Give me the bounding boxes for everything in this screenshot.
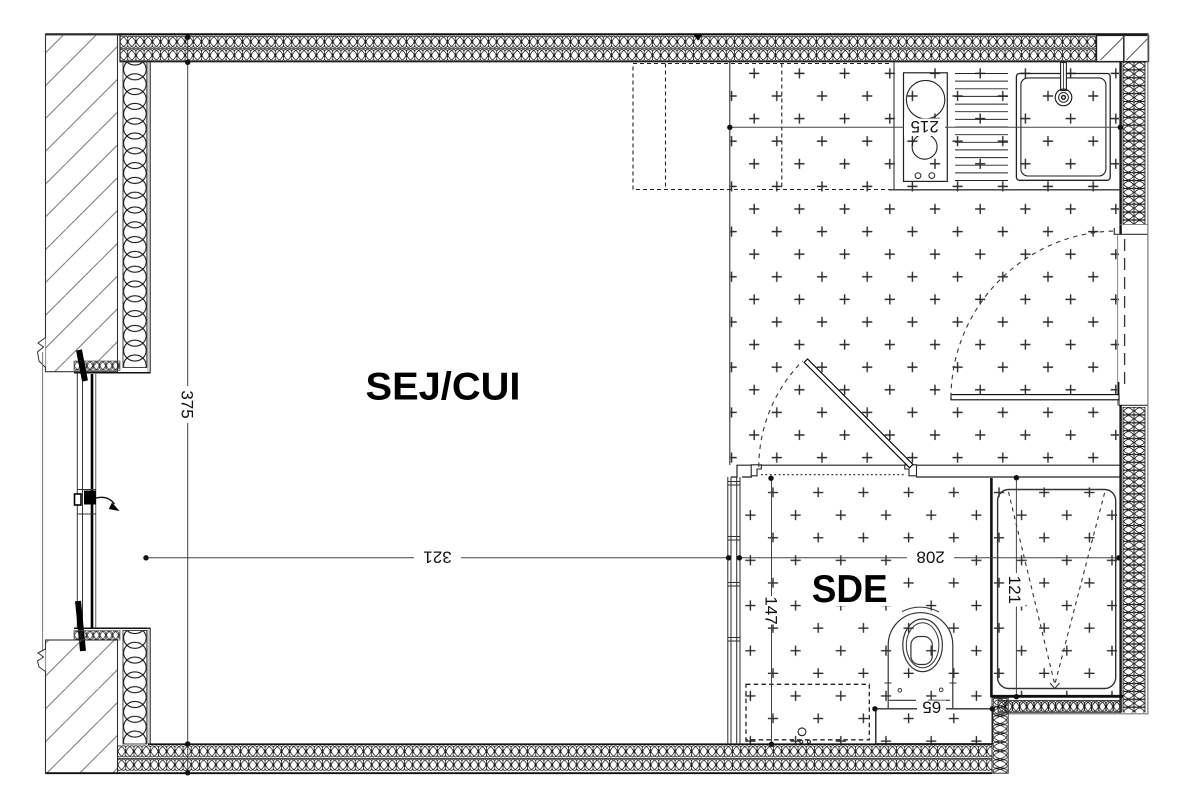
svg-text:SDE: SDE xyxy=(812,568,888,611)
svg-text:208: 208 xyxy=(916,548,944,567)
svg-text:SEJ/CUI: SEJ/CUI xyxy=(366,366,521,409)
svg-text:321: 321 xyxy=(423,548,451,567)
svg-text:215: 215 xyxy=(911,117,939,136)
svg-text:121: 121 xyxy=(1005,576,1024,604)
svg-text:375: 375 xyxy=(178,390,197,418)
svg-text:65: 65 xyxy=(922,698,941,717)
svg-text:147: 147 xyxy=(761,596,780,624)
